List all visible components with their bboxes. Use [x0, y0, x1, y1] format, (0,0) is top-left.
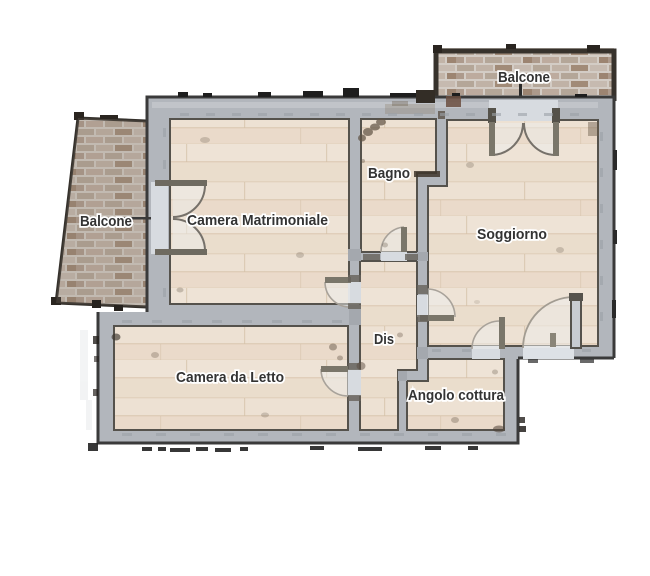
svg-text:Camera Matrimoniale: Camera Matrimoniale	[187, 212, 328, 229]
svg-text:Camera da Letto: Camera da Letto	[176, 369, 284, 386]
svg-text:Angolo cottura: Angolo cottura	[408, 387, 505, 404]
svg-text:Balcone: Balcone	[498, 69, 550, 86]
svg-text:Bagno: Bagno	[368, 165, 410, 182]
svg-text:Soggiorno: Soggiorno	[477, 226, 547, 243]
svg-text:Dis: Dis	[374, 331, 394, 348]
svg-text:Balcone: Balcone	[80, 213, 132, 230]
